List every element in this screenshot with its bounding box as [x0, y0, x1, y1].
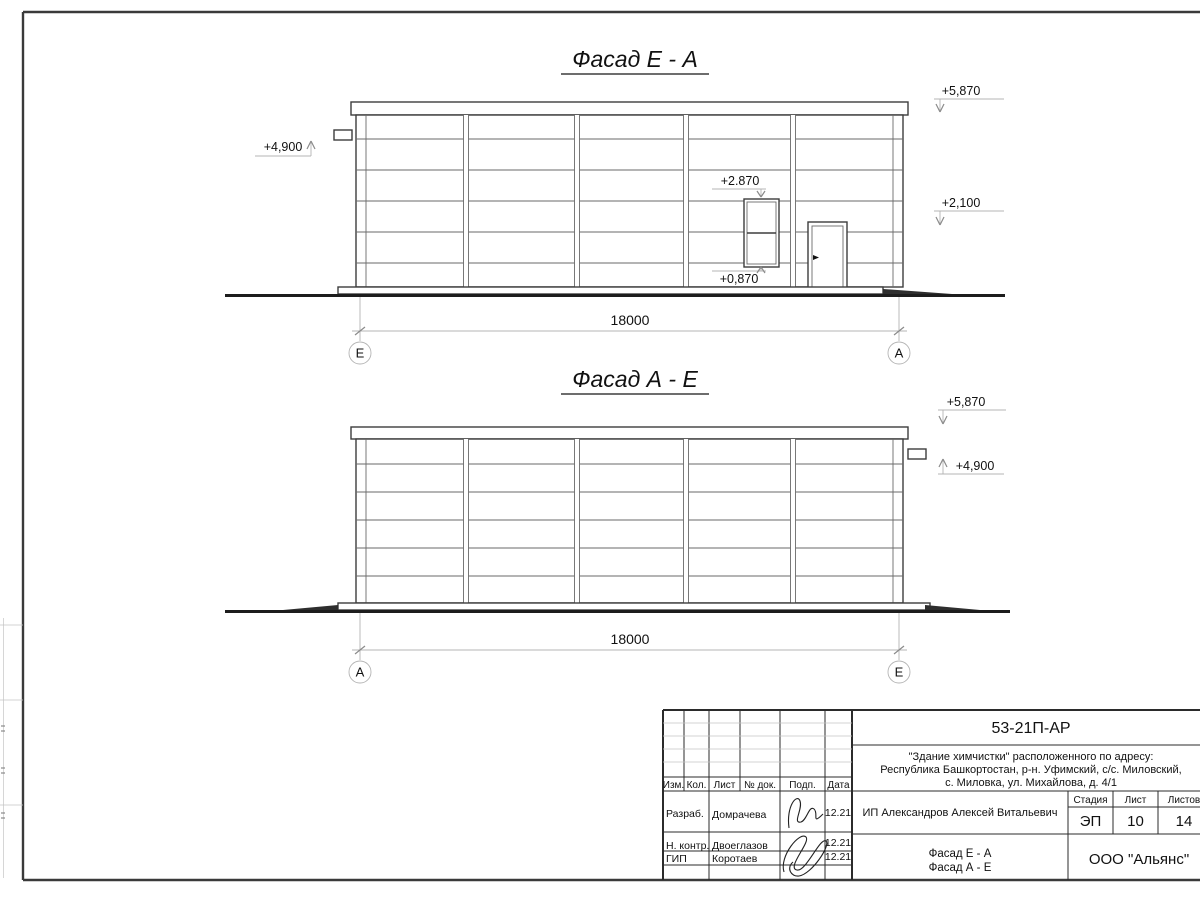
document-code: 53-21П-АР — [991, 720, 1070, 737]
elevation-mark-2870: +2.870 — [721, 174, 760, 188]
elevation-mark-5870: +5,870 — [942, 84, 981, 98]
pipe-outlet — [334, 130, 352, 140]
facade-a-e-elevation-marks: +5,870 +4,900 — [938, 395, 1006, 474]
facade-a-e: Фасад А - Е — [225, 366, 1010, 683]
facade-a-e-building — [225, 427, 1010, 612]
facade-e-a-title: Фасад Е - А — [572, 46, 698, 72]
facade-e-a-building — [225, 102, 1005, 296]
row-name-0: Домрачева — [712, 809, 767, 821]
col-header-podp: Подп. — [789, 780, 816, 791]
axis-label-right: Е — [895, 665, 904, 680]
project-line-1: "Здание химчистки" расположенного по адр… — [909, 751, 1154, 763]
row-role-0: Разраб. — [666, 808, 704, 820]
title-block: Изм. Кол. Лист № док. Подп. Дата Разраб.… — [663, 710, 1200, 880]
col-header-doc: № док. — [744, 780, 776, 791]
parapet — [351, 427, 908, 439]
elevation-mark-5870: +5,870 — [947, 395, 986, 409]
axis-label-right: А — [895, 346, 904, 361]
col-header-list: Лист — [714, 780, 736, 791]
row-date-1: 12.21 — [825, 837, 851, 849]
row-name-2: Коротаев — [712, 853, 758, 865]
axis-label-left: А — [356, 665, 365, 680]
ramp — [883, 289, 952, 294]
elevation-mark-4900: +4,900 — [956, 459, 995, 473]
left-margin-strip — [0, 618, 23, 878]
plinth — [338, 287, 883, 294]
organization-name: ООО "Альянс" — [1089, 851, 1189, 868]
col-header-kol: Кол. — [687, 780, 707, 791]
facade-e-a-dimension: 18000 Е А — [349, 297, 910, 364]
window — [744, 199, 779, 267]
ramp-right — [925, 605, 980, 610]
door — [808, 222, 847, 291]
facade-a-e-title: Фасад А - Е — [572, 366, 698, 392]
row-date-2: 12.21 — [825, 851, 851, 863]
drawing-sheet: Фасад Е - А — [0, 0, 1200, 900]
elevation-mark-4900: +4,900 — [264, 140, 303, 154]
sheets-total: 14 — [1176, 813, 1193, 830]
facade-a-e-dimension: 18000 А Е — [349, 613, 910, 683]
elevation-mark-0870: +0,870 — [720, 272, 759, 286]
stage-label: Стадия — [1073, 795, 1107, 806]
content-line-1: Фасад Е - А — [929, 848, 992, 860]
content-line-2: Фасад А - Е — [929, 862, 992, 874]
project-line-2: Республика Башкортостан, р-н. Уфимский, … — [880, 764, 1181, 776]
axis-label-left: Е — [356, 346, 365, 361]
facade-e-a: Фасад Е - А — [225, 46, 1005, 364]
signature-control — [783, 836, 827, 876]
ramp-left — [283, 605, 338, 610]
row-role-1: Н. контр. — [666, 840, 709, 852]
client-name: ИП Александров Алексей Витальевич — [862, 807, 1057, 819]
project-line-3: с. Миловка, ул. Михайлова, д. 4/1 — [945, 777, 1117, 789]
parapet — [351, 102, 908, 115]
stage-value: ЭП — [1080, 813, 1102, 830]
sheet-label: Лист — [1125, 795, 1147, 806]
row-role-2: ГИП — [666, 853, 687, 865]
pipe-outlet — [908, 449, 926, 459]
sheet-number: 10 — [1127, 813, 1144, 830]
sheets-label: Листов — [1168, 795, 1200, 806]
drawing-canvas: Фасад Е - А — [0, 0, 1200, 900]
col-header-date: Дата — [827, 780, 850, 791]
row-name-1: Двоеглазов — [712, 840, 768, 852]
elevation-mark-2100: +2,100 — [942, 196, 981, 210]
dimension-label: 18000 — [611, 312, 650, 328]
row-date-0: 12.21 — [825, 807, 851, 819]
plinth — [338, 603, 930, 610]
dimension-label: 18000 — [611, 631, 650, 647]
signature-developer — [788, 799, 823, 828]
col-header-izm: Изм. — [663, 780, 684, 791]
